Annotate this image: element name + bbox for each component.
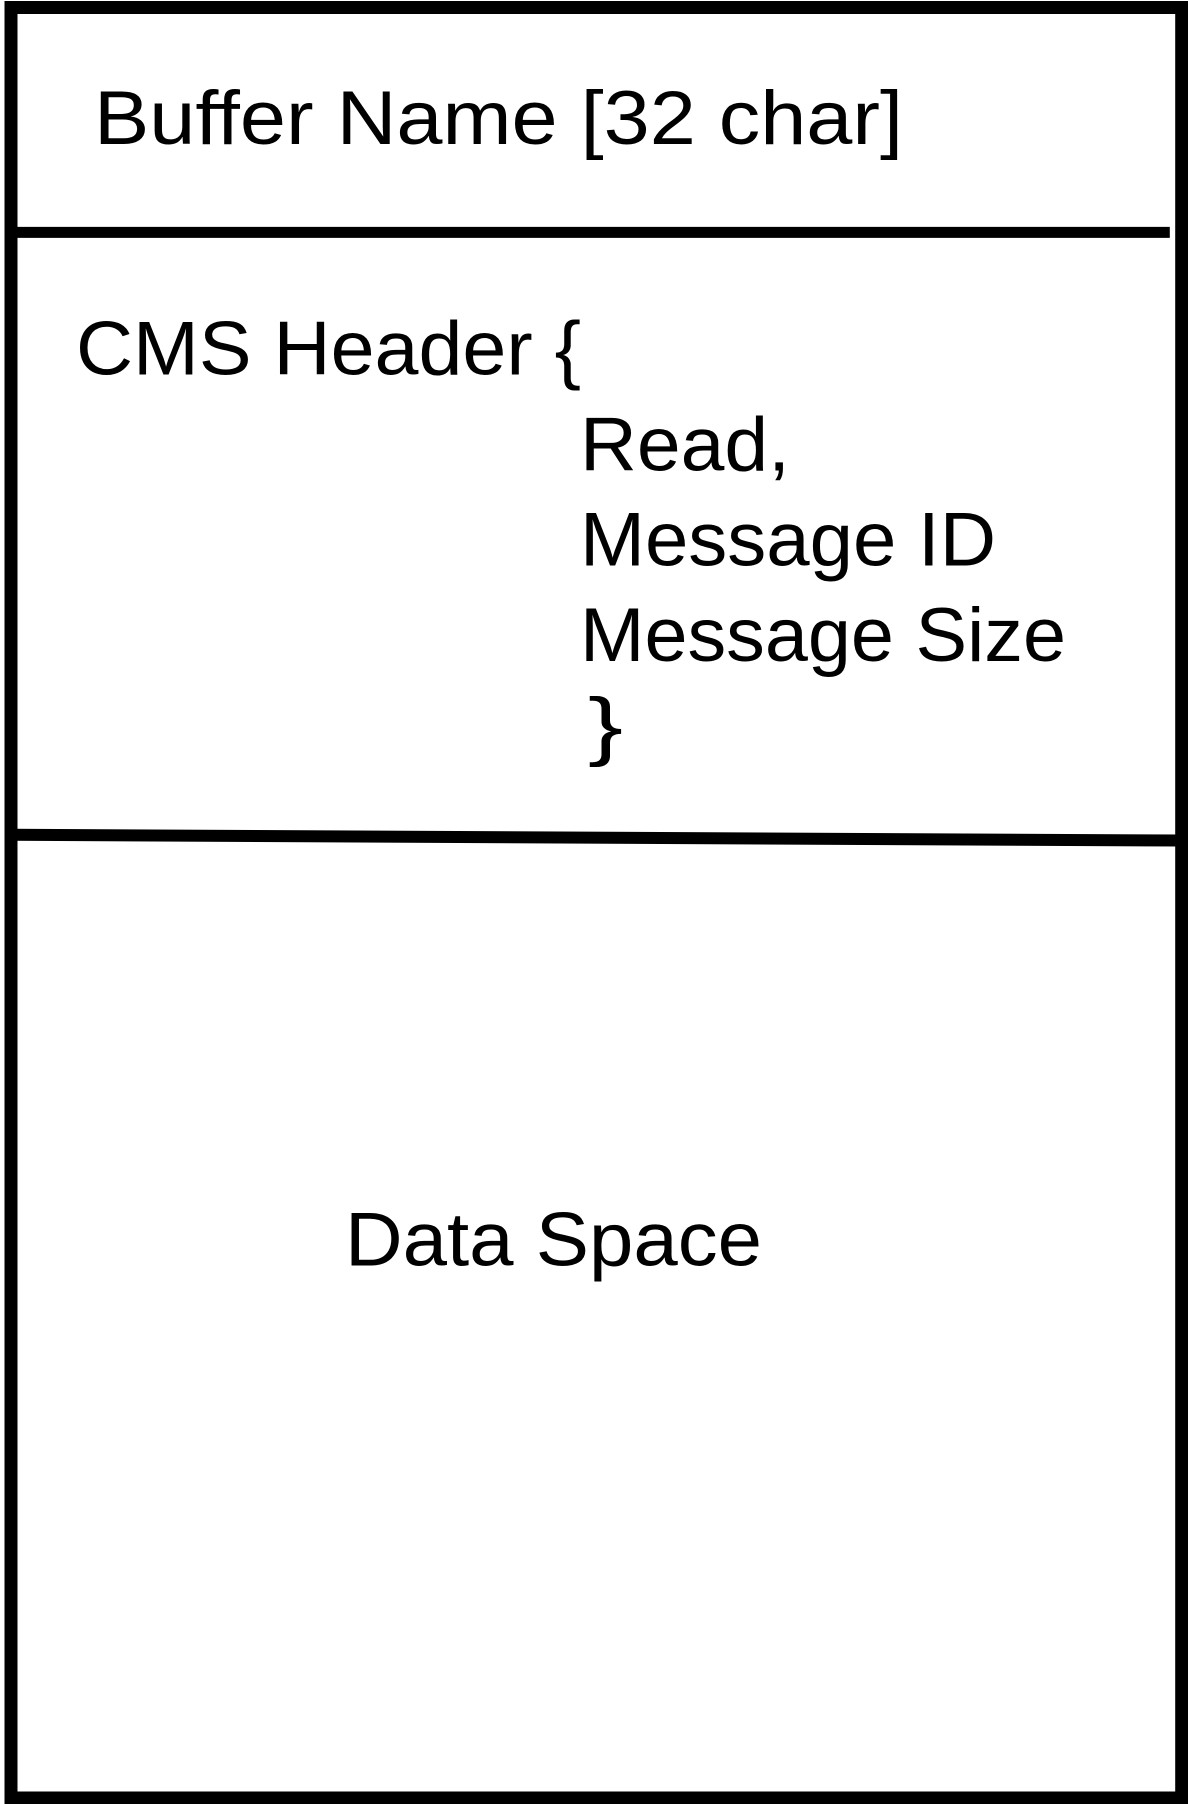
svg-text:Buffer Name [32 char]: Buffer Name [32 char] (94, 76, 903, 161)
svg-text:Data Space: Data Space (345, 1198, 762, 1283)
svg-text:Message Size: Message Size (580, 593, 1066, 678)
svg-text:CMS Header {: CMS Header { (76, 307, 581, 392)
svg-text:Read,: Read, (580, 403, 790, 488)
svg-text:Message ID: Message ID (580, 498, 996, 583)
svg-text:}: } (588, 683, 623, 768)
